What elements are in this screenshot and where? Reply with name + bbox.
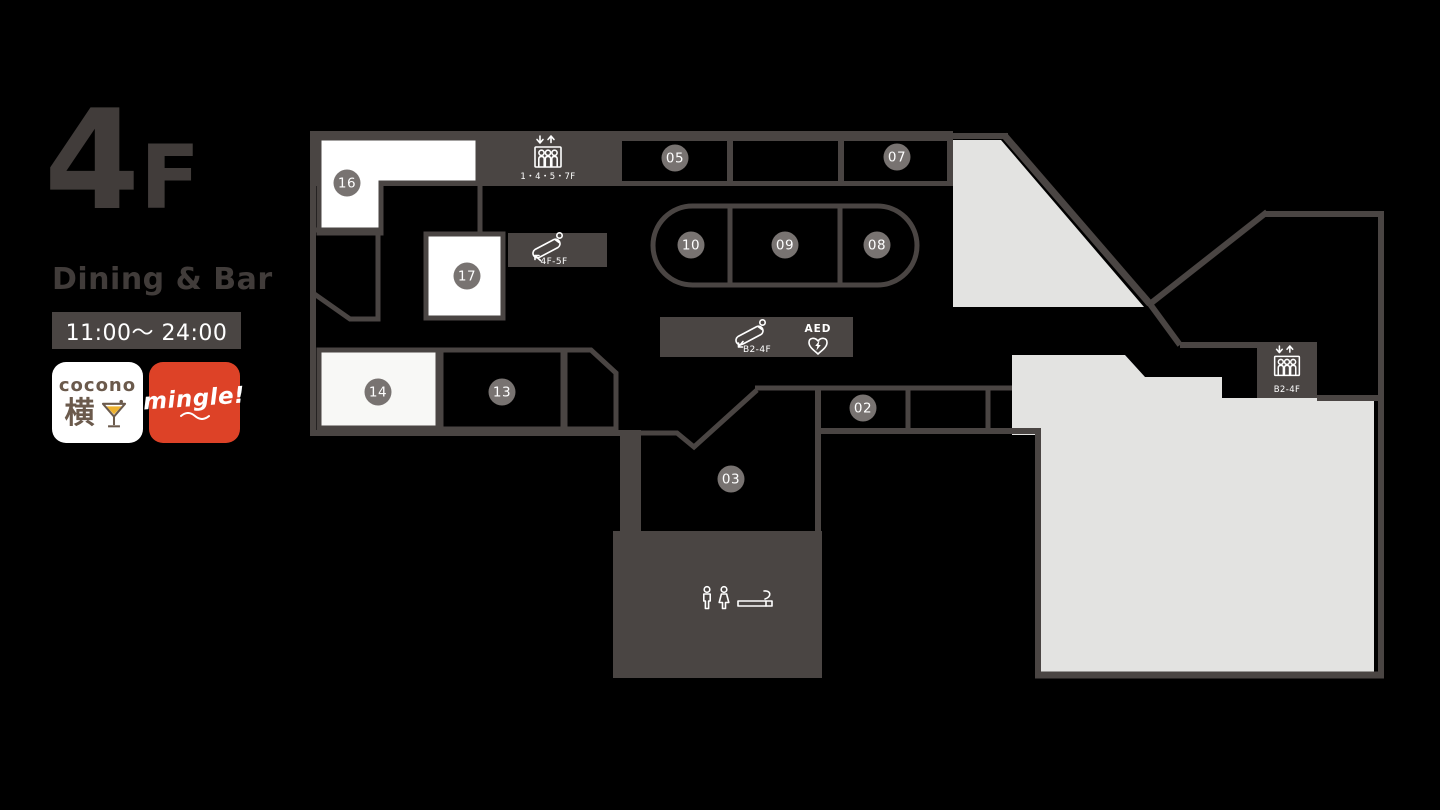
unit-badge-05[interactable]: 05 — [662, 145, 689, 172]
unit-badge-10[interactable]: 10 — [678, 232, 705, 259]
svg-text:14: 14 — [369, 385, 387, 401]
unit-badge-17[interactable]: 17 — [454, 263, 481, 290]
unit-badge-09[interactable]: 09 — [772, 232, 799, 259]
svg-text:13: 13 — [493, 385, 511, 401]
unit-badge-14[interactable]: 14 — [365, 379, 392, 406]
svg-text:03: 03 — [722, 472, 740, 488]
elevator-right-label: B2-4F — [1274, 385, 1301, 395]
svg-text:08: 08 — [868, 238, 886, 254]
svg-text:02: 02 — [854, 401, 872, 417]
floor-map: 1・4・5・7F 4F-5F B2-4F AED B2-4F 16 17 14 … — [0, 0, 1440, 810]
unit-badge-16[interactable]: 16 — [334, 170, 361, 197]
unit-badge-08[interactable]: 08 — [864, 232, 891, 259]
svg-text:05: 05 — [666, 151, 684, 167]
escalator-upper-label: 4F-5F — [540, 257, 567, 267]
unit-badge-03[interactable]: 03 — [718, 466, 745, 493]
unit-badge-13[interactable]: 13 — [489, 379, 516, 406]
svg-text:17: 17 — [458, 269, 476, 285]
svg-text:16: 16 — [338, 176, 356, 192]
aed-label: AED — [804, 323, 831, 335]
unit-badge-02[interactable]: 02 — [850, 395, 877, 422]
svg-text:07: 07 — [888, 150, 906, 166]
restroom-block — [613, 531, 822, 678]
unit-room-15[interactable] — [565, 350, 616, 429]
unit-badge-07[interactable]: 07 — [884, 144, 911, 171]
floor-guide-page: 4 F Dining & Bar 11:00〜 24:00 cocono 横 m… — [0, 0, 1440, 810]
svg-text:09: 09 — [776, 238, 794, 254]
unit-room-06[interactable] — [733, 141, 838, 181]
service-zone-upper — [953, 140, 1144, 307]
service-zone-lower — [1012, 355, 1374, 672]
elevator-upper-label: 1・4・5・7F — [520, 172, 575, 182]
svg-text:10: 10 — [682, 238, 700, 254]
escalator-lower-label: B2-4F — [743, 345, 771, 355]
